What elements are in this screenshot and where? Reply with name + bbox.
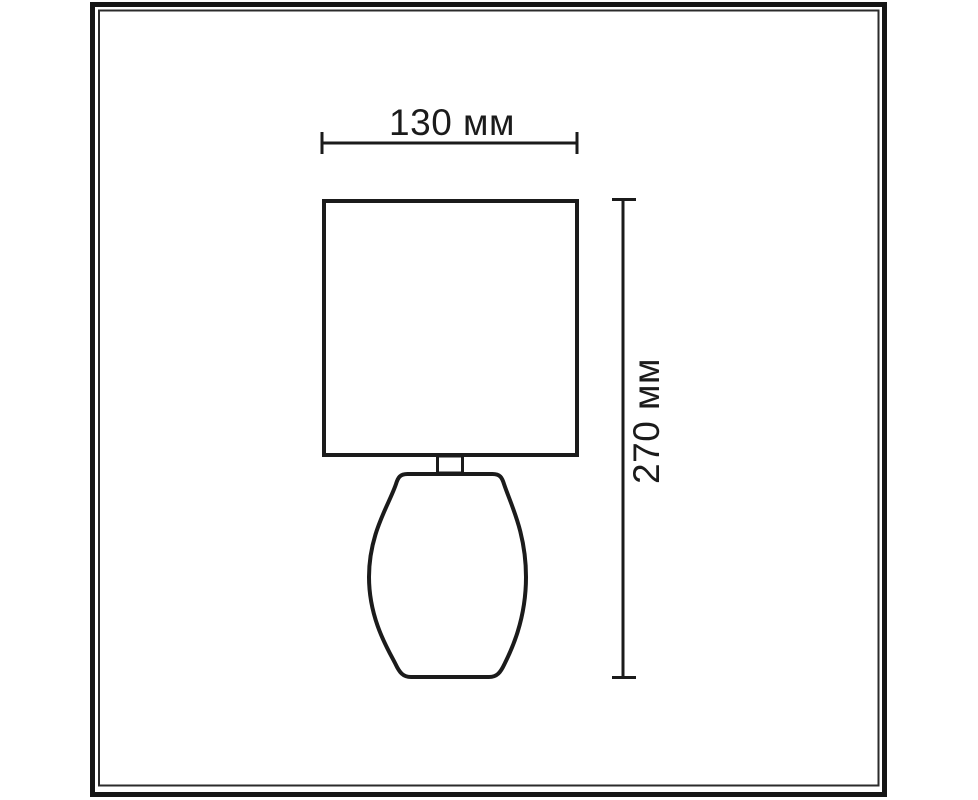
width-dimension: 130 мм (322, 102, 577, 154)
height-dimension-label: 270 мм (626, 358, 667, 484)
width-dimension-label: 130 мм (389, 102, 515, 143)
height-dimension: 270 мм (612, 200, 667, 678)
diagram-svg: 130 мм 270 мм (0, 0, 978, 800)
product-dimension-diagram: 130 мм 270 мм (0, 0, 978, 800)
lamp-neck-outline (438, 456, 463, 473)
lamp-shade-outline (324, 201, 577, 455)
lamp-base-outline (369, 474, 526, 677)
